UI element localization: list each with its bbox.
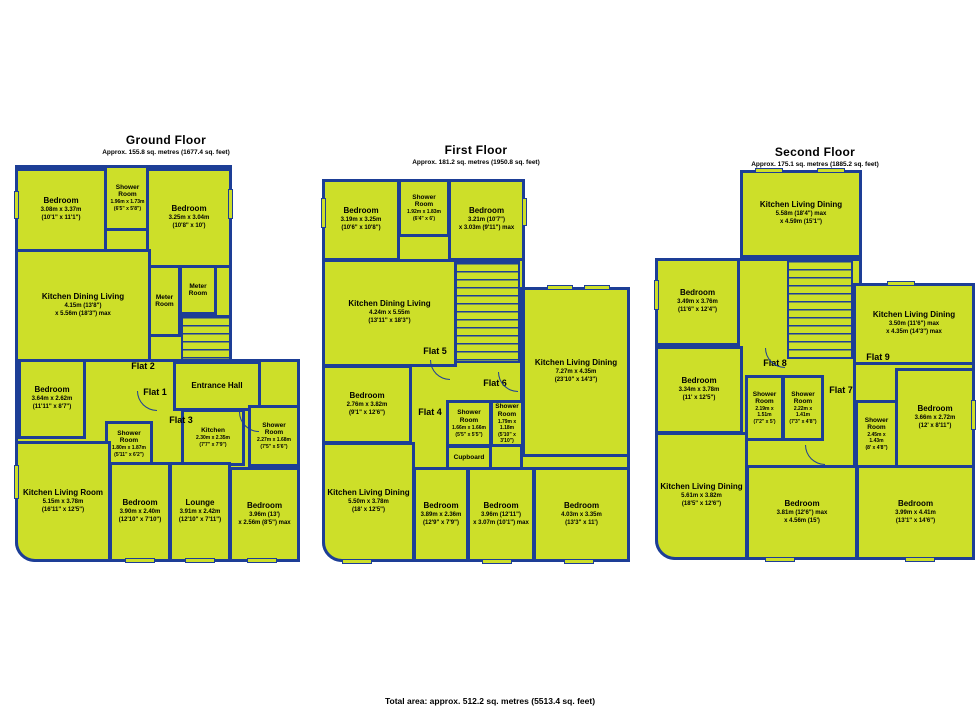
room-bedroom: Bedroom 3.49m x 3.76m (11'6" x 12'4") <box>655 258 740 346</box>
room-name: Bedroom <box>680 289 715 298</box>
room-dims: x 4.35m (14'3") max <box>886 329 942 336</box>
room-dims: (13'3" x 11') <box>565 520 598 527</box>
room-dims: (7'2" x 5') <box>754 419 776 425</box>
room-name: Bedroom <box>349 392 384 401</box>
room-dims: 5.61m x 3.82m <box>681 493 722 500</box>
floor-title: Ground Floor <box>15 133 317 147</box>
first-floor-plan: Bedroom 3.19m x 3.25m (10'6" x 10'8") Sh… <box>322 172 630 568</box>
ground-floor-header: Ground Floor Approx. 155.8 sq. metres (1… <box>15 133 317 156</box>
floor-subtitle: Approx. 175.1 sq. metres (1885.2 sq. fee… <box>655 161 975 168</box>
room-meter: Meter Room <box>179 265 217 315</box>
room-dims: 3.25m x 3.04m <box>169 215 210 222</box>
room-bedroom: Bedroom 3.96m (12'11") x 3.07m (10'1") m… <box>467 467 535 562</box>
room-dims: (12' x 8'11") <box>919 423 952 430</box>
room-dims: 2.30m x 2.35m <box>196 435 230 441</box>
room-name: Bedroom <box>171 205 206 214</box>
window <box>654 280 659 310</box>
room-shower: Shower Room 1.79m x 1.18m (5'10" x 3'10"… <box>490 400 524 447</box>
room-dims: (12'10" x 7'11") <box>179 517 221 524</box>
window <box>14 465 19 499</box>
room-name: Shower Room <box>110 430 148 444</box>
room-dims: (11'11" x 8'7") <box>33 404 72 411</box>
window <box>522 198 527 226</box>
room-dims: 2.76m x 3.82m <box>347 402 388 409</box>
room-dims: 4.03m x 3.35m <box>561 512 602 519</box>
room-name: Meter Room <box>153 294 176 308</box>
room-name: Bedroom <box>564 502 599 511</box>
room-dims: 3.19m x 3.25m <box>341 217 382 224</box>
room-dims: (5'11" x 6'2") <box>114 452 144 458</box>
room-name: Meter Room <box>184 283 212 297</box>
room-meter: Meter Room <box>148 265 181 337</box>
room-dims: (18' x 12'5") <box>352 507 385 514</box>
second-floor-header: Second Floor Approx. 175.1 sq. metres (1… <box>655 145 975 168</box>
room-dims: 2.19m x 1.51m <box>750 406 779 418</box>
room-dims: 3.89m x 2.36m <box>421 512 462 519</box>
window <box>817 168 845 173</box>
room-name: Bedroom <box>423 502 458 511</box>
room-dims: 2.45m x 1.43m <box>860 432 893 444</box>
room-dims: 1.66m x 1.66m <box>452 425 486 431</box>
room-dims: (8' x 4'8") <box>866 445 888 451</box>
first-floor-header: First Floor Approx. 181.2 sq. metres (19… <box>322 143 630 166</box>
room-dims: 3.50m (11'6") max <box>889 321 939 328</box>
floor-subtitle: Approx. 155.8 sq. metres (1677.4 sq. fee… <box>15 149 317 156</box>
room-name: Kitchen Dining Living <box>348 300 430 309</box>
room-dims: (23'10" x 14'3") <box>555 377 598 384</box>
room-bedroom: Bedroom 3.21m (10'7") x 3.03m (9'11") ma… <box>448 179 525 261</box>
room-dims: (5'10" x 3'10") <box>495 432 519 444</box>
room-name: Entrance Hall <box>191 382 242 391</box>
room-name: Shower Room <box>860 417 893 431</box>
room-dims: 4.24m x 5.55m <box>369 310 410 317</box>
room-dims: 2.22m x 1.41m <box>787 406 819 418</box>
stairs <box>787 259 853 359</box>
second-floor-plan: Kitchen Living Dining 5.58m (18'4") max … <box>655 170 975 568</box>
room-dims: (10'8" x 10') <box>172 223 205 230</box>
room-dims: x 3.03m (9'11") max <box>459 225 514 232</box>
room-bedroom: Bedroom 2.76m x 3.82m (9'1" x 12'6") <box>322 365 412 444</box>
room-dims: x 3.07m (10'1") max <box>473 520 529 527</box>
window <box>247 558 277 563</box>
room-name: Shower Room <box>750 391 779 405</box>
room-dims: (11' x 12'5") <box>683 395 716 402</box>
room-dims: (7'5" x 5'6") <box>260 444 287 450</box>
window <box>564 559 594 564</box>
room-dims: 3.08m x 3.37m <box>41 207 82 214</box>
room-entrance-hall: Entrance Hall <box>173 361 261 411</box>
room-name: Kitchen Living Dining <box>660 483 742 492</box>
room-name: Kitchen Living Dining <box>873 311 955 320</box>
room-dims: 1.92m x 1.83m <box>407 209 441 215</box>
window <box>321 198 326 228</box>
room-name: Kitchen Living Dining <box>535 359 617 368</box>
room-dims: 1.80m x 1.87m <box>112 445 146 451</box>
room-dims: x 4.59m (15'1") <box>780 219 822 226</box>
window <box>14 191 19 219</box>
room-name: Cupboard <box>454 454 485 461</box>
room-dims: 5.50m x 3.78m <box>348 499 389 506</box>
room-kitchen-dining-living: Kitchen Dining Living 4.15m (13'8") x 5.… <box>15 249 151 362</box>
floor-subtitle: Approx. 181.2 sq. metres (1950.8 sq. fee… <box>322 159 630 166</box>
room-name: Bedroom <box>343 207 378 216</box>
room-bedroom: Bedroom 3.96m (13') x 2.56m (8'5") max <box>229 467 300 562</box>
room-name: Bedroom <box>122 499 157 508</box>
room-lounge: Lounge 3.91m x 2.42m (12'10" x 7'11") <box>169 462 231 562</box>
window <box>584 285 610 290</box>
room-dims: 3.90m x 2.40m <box>120 509 161 516</box>
window <box>185 558 215 563</box>
total-area-label: Total area: approx. 512.2 sq. metres (55… <box>0 696 980 706</box>
room-dims: (6'4" x 6') <box>413 216 435 222</box>
room-kitchen-living-dining: Kitchen Living Dining 5.50m x 3.78m (18'… <box>322 442 415 562</box>
window <box>755 168 783 173</box>
room-dims: 4.15m (13'8") <box>65 303 102 310</box>
room-name: Bedroom <box>681 377 716 386</box>
floor-title: Second Floor <box>655 145 975 159</box>
room-bedroom: Bedroom 3.34m x 3.78m (11' x 12'5") <box>655 346 743 434</box>
flat-label: Flat 9 <box>850 352 906 362</box>
room-shower: Shower Room 1.96m x 1.73m (6'5" x 5'8") <box>104 165 151 231</box>
room-name: Kitchen Living Dining <box>760 201 842 210</box>
room-dims: (13'1" x 14'6") <box>896 518 935 525</box>
room-dims: x 4.56m (15') <box>784 518 820 525</box>
room-name: Shower Room <box>495 403 519 417</box>
room-dims: x 2.56m (8'5") max <box>238 520 290 527</box>
room-name: Bedroom <box>784 500 819 509</box>
room-shower: Shower Room 1.92m x 1.83m (6'4" x 6') <box>398 179 450 237</box>
flat-label: Flat 3 <box>153 415 209 425</box>
room-dims: (10'6" x 10'8") <box>341 225 380 232</box>
flat-label: Flat 7 <box>813 385 869 395</box>
room-dims: (16'11" x 12'5") <box>42 507 84 514</box>
room-name: Bedroom <box>34 386 69 395</box>
room-bedroom: Bedroom 3.08m x 3.37m (10'1" x 11'1") <box>15 168 107 252</box>
room-dims: 3.96m (12'11") <box>481 512 521 519</box>
room-name: Kitchen Living Dining <box>327 489 409 498</box>
room-shower: Shower Room 1.80m x 1.87m (5'11" x 6'2") <box>105 421 153 467</box>
room-dims: 7.27m x 4.35m <box>556 369 597 376</box>
room-name: Bedroom <box>43 197 78 206</box>
room-name: Shower Room <box>403 194 445 208</box>
room-name: Kitchen <box>201 427 225 434</box>
room-kitchen-living-dining: Kitchen Living Dining 7.27m x 4.35m (23'… <box>522 287 630 457</box>
room-name: Bedroom <box>898 500 933 509</box>
room-dims: (6'5" x 5'8") <box>114 206 141 212</box>
window <box>971 400 976 430</box>
window <box>342 559 372 564</box>
room-name: Kitchen Living Room <box>23 489 103 498</box>
room-dims: (7'3" x 4'8") <box>789 419 816 425</box>
room-name: Kitchen Dining Living <box>42 293 124 302</box>
stairs <box>455 261 520 363</box>
flat-label: Flat 4 <box>402 407 458 417</box>
window <box>125 558 155 563</box>
room-bedroom: Bedroom 3.25m x 3.04m (10'8" x 10') <box>146 168 232 268</box>
room-dims: 2.27m x 1.68m <box>257 437 291 443</box>
room-bedroom: Bedroom 3.19m x 3.25m (10'6" x 10'8") <box>322 179 400 261</box>
room-dims: 3.64m x 2.62m <box>32 396 73 403</box>
window <box>905 557 935 562</box>
room-shower: Shower Room 2.19m x 1.51m (7'2" x 5') <box>745 375 784 441</box>
room-dims: 1.96m x 1.73m <box>111 199 145 205</box>
room-kitchen-living-dining: Kitchen Living Dining 5.58m (18'4") max … <box>740 170 862 258</box>
room-name: Bedroom <box>247 502 282 511</box>
room-name: Lounge <box>186 499 215 508</box>
room-dims: (5'5" x 5'5") <box>455 432 482 438</box>
room-name: Bedroom <box>469 207 504 216</box>
room-bedroom: Bedroom 3.90m x 2.40m (12'10" x 7'10") <box>109 462 171 562</box>
room-dims: (13'11" x 18'3") <box>368 318 410 325</box>
room-dims: (11'6" x 12'4") <box>678 307 717 314</box>
room-bedroom: Bedroom 3.66m x 2.72m (12' x 8'11") <box>895 368 975 468</box>
window <box>765 557 795 562</box>
window <box>228 189 233 219</box>
room-dims: 3.96m (13') <box>249 512 280 519</box>
room-dims: (12'9" x 7'9") <box>423 520 459 527</box>
window <box>482 559 512 564</box>
room-shower: Shower Room 2.45m x 1.43m (8' x 4'8") <box>855 400 898 468</box>
room-bedroom: Bedroom 3.99m x 4.41m (13'1" x 14'6") <box>856 465 975 560</box>
flat-label: Flat 5 <box>407 346 463 356</box>
room-bedroom: Bedroom 3.89m x 2.36m (12'9" x 7'9") <box>413 467 469 562</box>
room-dims: 3.91m x 2.42m <box>180 509 221 516</box>
room-name: Shower Room <box>253 422 295 436</box>
ground-floor-plan: Bedroom 3.08m x 3.37m (10'1" x 11'1") Sh… <box>15 165 317 570</box>
room-dims: (18'5" x 12'6") <box>682 501 721 508</box>
room-dims: 3.34m x 3.78m <box>679 387 720 394</box>
room-dims: 3.81m (12'6") max <box>777 510 828 517</box>
room-dims: 5.58m (18'4") max <box>776 211 827 218</box>
stairs <box>181 315 232 362</box>
room-dims: 3.66m x 2.72m <box>915 415 956 422</box>
room-bedroom: Bedroom 3.64m x 2.62m (11'11" x 8'7") <box>18 359 86 439</box>
room-dims: 5.15m x 3.78m <box>43 499 84 506</box>
window <box>887 281 915 286</box>
room-dims: 3.49m x 3.76m <box>677 299 718 306</box>
room-dims: 1.79m x 1.18m <box>495 419 519 431</box>
room-dims: 3.21m (10'7") <box>468 217 505 224</box>
room-kitchen-living: Kitchen Living Room 5.15m x 3.78m (16'11… <box>15 441 111 562</box>
room-name: Bedroom <box>917 405 952 414</box>
room-dims: (10'1" x 11'1") <box>42 215 81 222</box>
room-dims: 3.99m x 4.41m <box>895 510 936 517</box>
room-dims: x 5.56m (18'3") max <box>55 311 111 318</box>
room-bedroom: Bedroom 4.03m x 3.35m (13'3" x 11') <box>533 467 630 562</box>
window <box>547 285 573 290</box>
room-dims: (7'7" x 7'9") <box>199 442 226 448</box>
floor-title: First Floor <box>322 143 630 157</box>
room-kitchen-living-dining: Kitchen Living Dining 5.61m x 3.82m (18'… <box>655 432 748 560</box>
room-dims: (12'10" x 7'10") <box>119 517 162 524</box>
room-name: Shower Room <box>109 184 146 198</box>
room-bedroom: Bedroom 3.81m (12'6") max x 4.56m (15') <box>746 465 858 560</box>
floorplan-canvas: Ground Floor Approx. 155.8 sq. metres (1… <box>0 0 980 712</box>
flat-label: Flat 2 <box>115 361 171 371</box>
room-name: Bedroom <box>483 502 518 511</box>
room-dims: (9'1" x 12'6") <box>349 410 385 417</box>
